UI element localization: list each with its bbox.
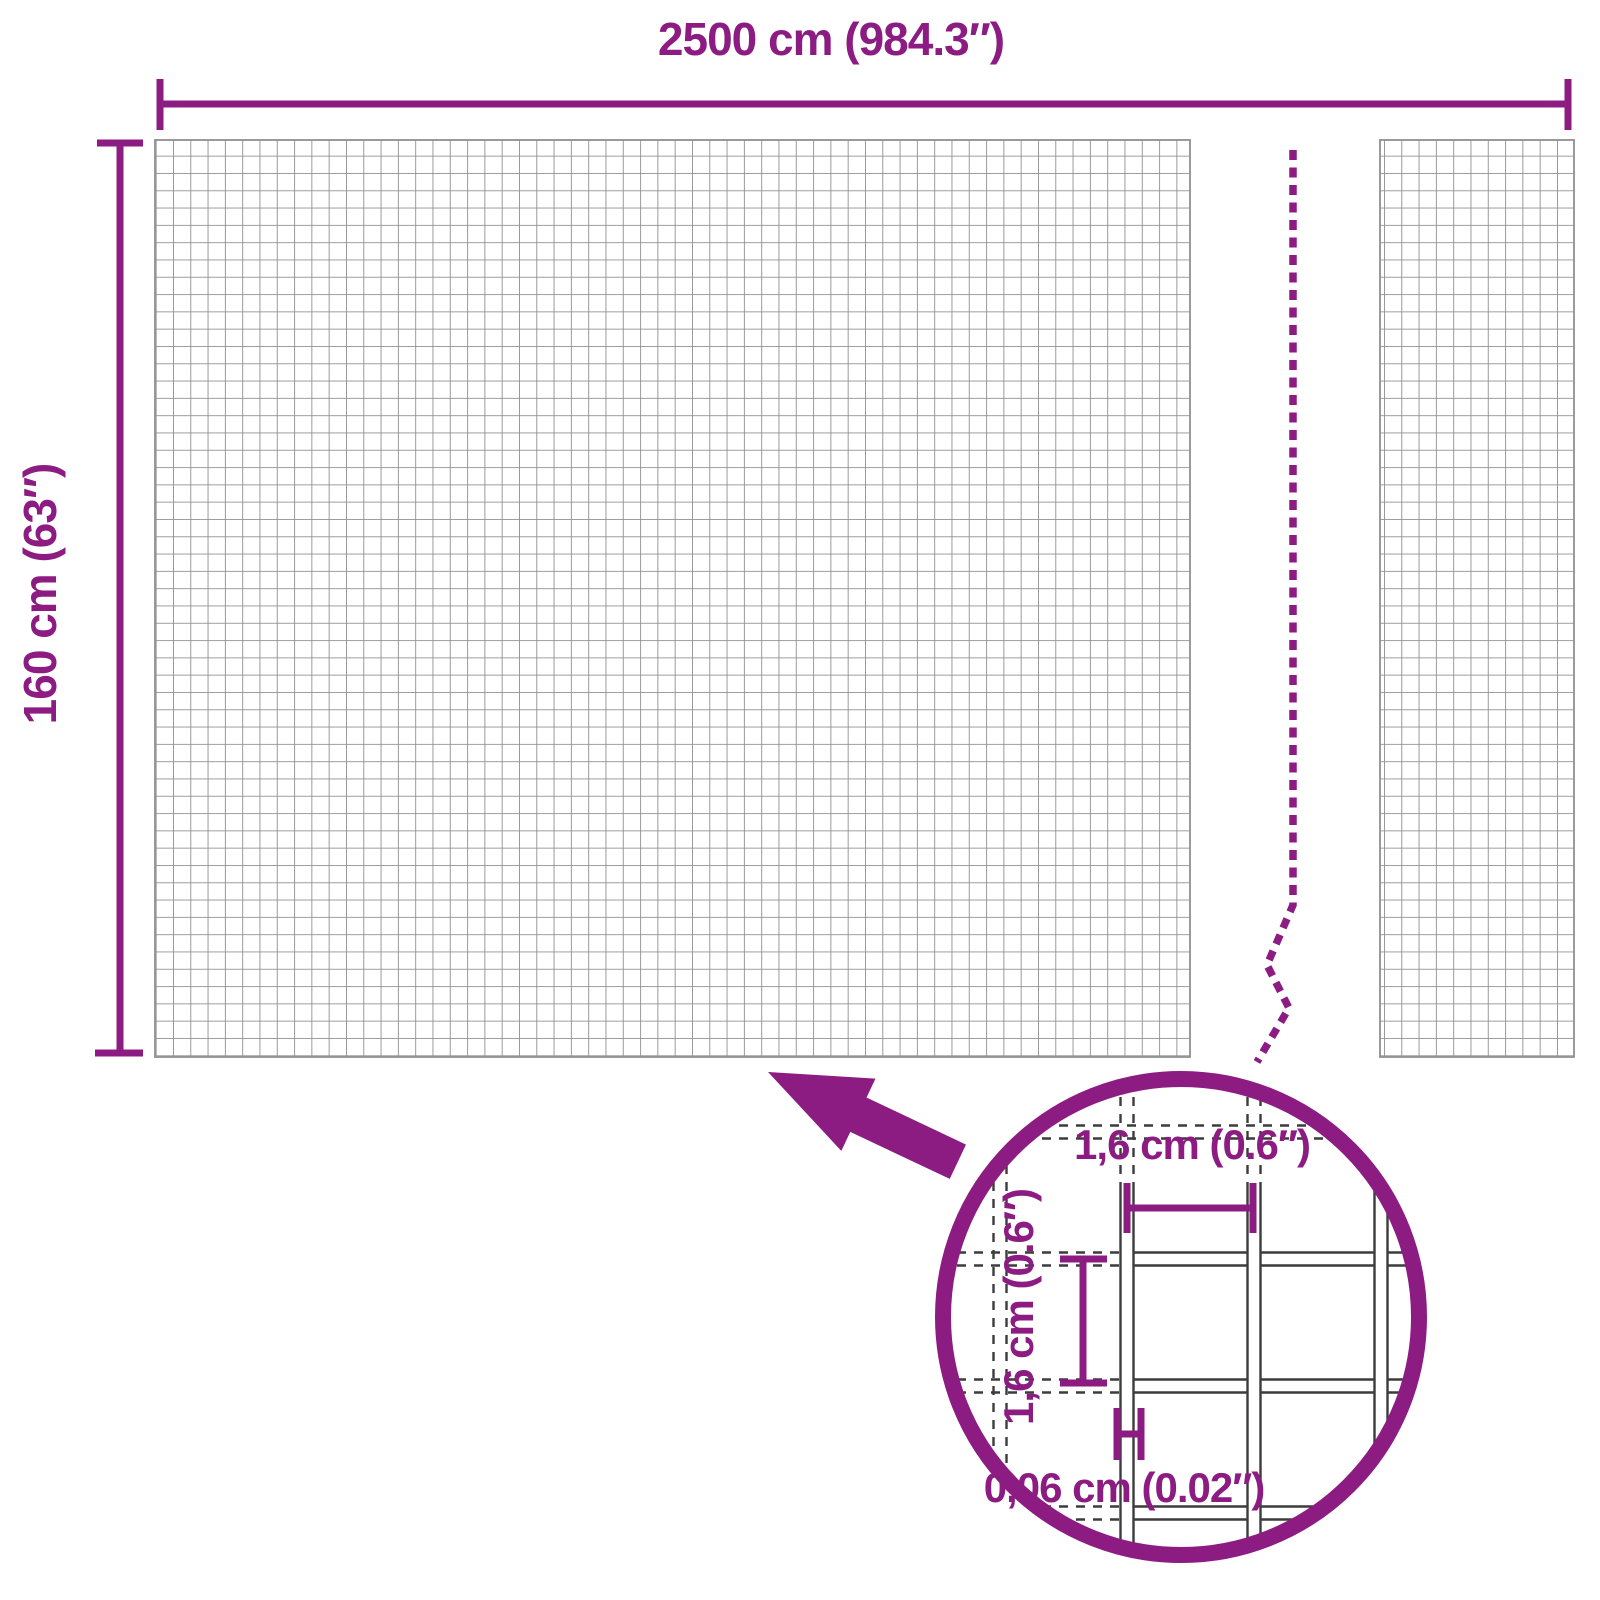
width-label: 2500 cm (984.3″) (658, 13, 1004, 65)
diagram-svg: 2500 cm (984.3″) 160 cm (63″) (0, 0, 1600, 1600)
zoom-arrow-icon (751, 1036, 975, 1198)
width-dimension: 2500 cm (984.3″) (160, 13, 1568, 130)
zoom-detail: 1,6 cm (0.6″) 1,6 cm (0.6″) 0,06 cm (0.0… (940, 1079, 1425, 1564)
detail-width-label: 1,6 cm (0.6″) (1074, 1121, 1310, 1168)
height-label: 160 cm (63″) (14, 464, 66, 725)
detail-height-label: 1,6 cm (0.6″) (995, 1189, 1042, 1425)
product-dimension-diagram: 2500 cm (984.3″) 160 cm (63″) (0, 0, 1600, 1600)
mesh-panel-right (1380, 140, 1574, 1057)
detail-wire-vertical-3-body (1375, 1184, 1388, 1564)
mesh-panel-left (155, 140, 1190, 1057)
break-line (1257, 150, 1293, 1062)
height-dimension: 160 cm (63″) (14, 143, 143, 1053)
detail-annotations (1060, 1183, 1253, 1460)
